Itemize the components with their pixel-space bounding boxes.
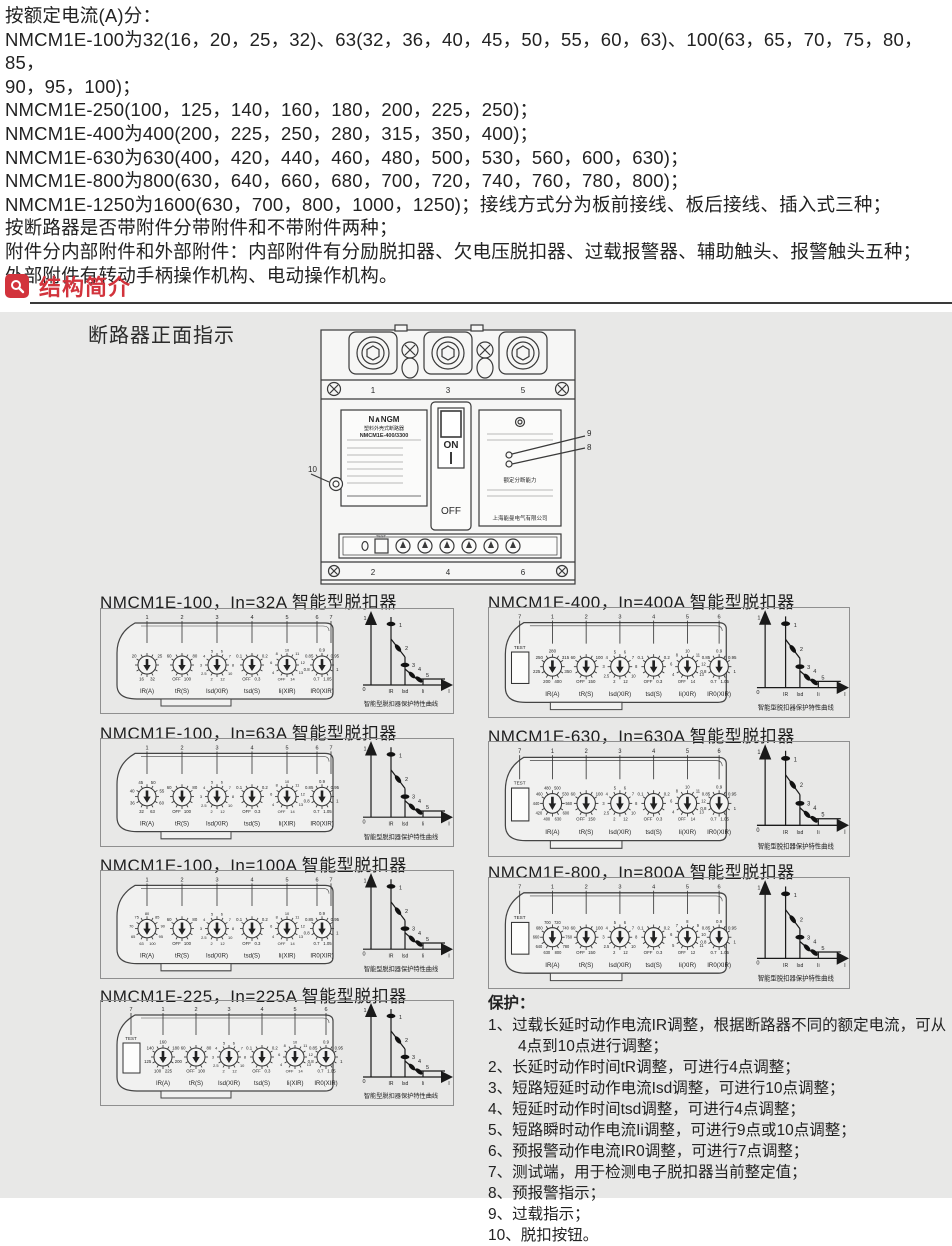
pole-6: 6 — [521, 568, 526, 577]
svg-text:5: 5 — [223, 1040, 225, 1045]
svg-text:6: 6 — [315, 745, 318, 751]
intro-line: NMCM1E-630为630(400，420，440，460，480，500，5… — [5, 146, 949, 170]
svg-text:OFF: OFF — [278, 809, 286, 814]
svg-text:140: 140 — [147, 1046, 155, 1051]
svg-text:Isd(XIR): Isd(XIR) — [609, 691, 631, 698]
svg-text:0.7: 0.7 — [710, 950, 717, 955]
svg-text:720: 720 — [554, 920, 561, 925]
trip-curve-chart: 1234510IRIsdIiI智能型脱扣器保护特性曲线 — [756, 744, 849, 850]
svg-text:60: 60 — [167, 654, 172, 659]
svg-text:1.05: 1.05 — [720, 679, 729, 684]
svg-text:IR(A): IR(A) — [140, 952, 154, 959]
svg-text:2: 2 — [180, 745, 183, 751]
svg-text:10: 10 — [701, 932, 706, 937]
svg-text:6: 6 — [233, 1040, 235, 1045]
svg-text:8: 8 — [276, 651, 278, 656]
trip-unit-panel-drawing: TEST712345640042044046048050053056060063… — [489, 742, 849, 856]
svg-text:560: 560 — [565, 801, 572, 806]
svg-text:12: 12 — [301, 660, 305, 665]
svg-text:OFF: OFF — [278, 677, 286, 682]
svg-text:1: 1 — [757, 615, 760, 621]
svg-text:100: 100 — [154, 1069, 162, 1074]
protection-item: 7、测试端，用于检测电子脱扣器当前整定值； — [488, 1162, 948, 1183]
brand-text: N∧NGM — [369, 415, 400, 424]
svg-text:0.1: 0.1 — [637, 791, 644, 796]
svg-text:Isd: Isd — [402, 821, 409, 827]
svg-text:3: 3 — [412, 795, 415, 801]
svg-text:2: 2 — [194, 1007, 197, 1013]
trip-curve-chart: 1234510IRIsdIiI智能型脱扣器保护特性曲线 — [362, 873, 453, 973]
svg-text:60: 60 — [181, 1046, 186, 1051]
svg-text:3: 3 — [227, 1007, 230, 1013]
svg-text:60: 60 — [571, 655, 576, 660]
svg-text:IR: IR — [783, 963, 788, 969]
svg-text:Isd: Isd — [402, 689, 409, 695]
svg-text:IR(A): IR(A) — [545, 829, 559, 836]
svg-text:OFF: OFF — [242, 941, 251, 946]
svg-text:36: 36 — [130, 801, 135, 806]
svg-text:tsd(S): tsd(S) — [645, 691, 661, 698]
pole-1: 1 — [371, 386, 376, 395]
svg-text:IR0(XIR): IR0(XIR) — [707, 962, 731, 969]
svg-text:14: 14 — [691, 816, 696, 821]
svg-text:740: 740 — [562, 925, 569, 930]
svg-text:IR: IR — [389, 689, 394, 695]
svg-text:IR0(XIR): IR0(XIR) — [310, 689, 333, 695]
svg-text:OFF: OFF — [644, 679, 653, 684]
protection-item: 1、过载长延时动作电流IR调整，根据断路器不同的额定电流，可从4点到10点进行调… — [488, 1015, 948, 1057]
svg-text:1: 1 — [399, 885, 402, 891]
pole-3: 3 — [446, 386, 451, 395]
svg-text:0.8: 0.8 — [304, 931, 311, 936]
protection-item: 9、过载指示； — [488, 1204, 948, 1225]
svg-text:100: 100 — [596, 791, 604, 796]
on-label: ON — [444, 440, 459, 451]
svg-text:420: 420 — [536, 810, 543, 815]
protection-item: 5、短路瞬时动作电流Ii调整，可进行9点或10点调整； — [488, 1120, 948, 1141]
svg-text:Isd(XIR): Isd(XIR) — [218, 1081, 240, 1087]
svg-text:0.3: 0.3 — [254, 941, 261, 946]
svg-text:4: 4 — [813, 806, 817, 812]
svg-text:5: 5 — [821, 812, 824, 818]
svg-text:0.95: 0.95 — [331, 654, 340, 659]
svg-text:100: 100 — [198, 1069, 206, 1074]
svg-text:OFF: OFF — [576, 816, 585, 821]
svg-text:6: 6 — [718, 614, 721, 620]
svg-text:0.1: 0.1 — [246, 1046, 253, 1051]
svg-text:60: 60 — [167, 785, 172, 790]
svg-text:1.05: 1.05 — [323, 677, 332, 682]
svg-text:5: 5 — [426, 937, 429, 943]
intro-line: 附件分内部附件和外部附件：内部附件有分励脱扣器、欠电压脱扣器、过载报警器、辅助触… — [5, 240, 949, 264]
svg-text:640: 640 — [536, 944, 543, 949]
svg-text:IR: IR — [783, 692, 788, 698]
svg-text:680: 680 — [536, 925, 543, 930]
svg-text:I: I — [844, 830, 846, 836]
svg-text:IR0(XIR): IR0(XIR) — [310, 820, 333, 827]
svg-text:7: 7 — [329, 745, 332, 751]
svg-text:150: 150 — [588, 950, 596, 955]
svg-text:TEST: TEST — [125, 1036, 137, 1041]
svg-text:IR(A): IR(A) — [545, 691, 559, 698]
svg-text:6: 6 — [324, 1007, 327, 1013]
intro-line: 外部附件有转动手柄操作机构、电动操作机构。 — [5, 264, 949, 288]
svg-text:6: 6 — [278, 1052, 280, 1057]
trip-unit-panel-drawing: TEST7123456100125140160180200225IR(A)OFF… — [101, 1001, 453, 1105]
intro-line: NMCM1E-1250为1600(630，700，800，1000，1250)；… — [5, 193, 949, 217]
svg-text:200: 200 — [175, 1059, 183, 1064]
svg-text:OFF: OFF — [678, 950, 686, 955]
svg-text:630: 630 — [555, 816, 562, 821]
svg-text:1.05: 1.05 — [720, 816, 729, 821]
svg-text:0.95: 0.95 — [728, 655, 737, 660]
svg-text:1: 1 — [145, 877, 148, 883]
svg-text:0.9: 0.9 — [716, 649, 723, 654]
svg-text:8: 8 — [232, 662, 234, 667]
svg-text:1: 1 — [399, 753, 402, 759]
svg-text:IR: IR — [389, 1081, 394, 1087]
svg-text:100: 100 — [596, 925, 604, 930]
svg-text:6: 6 — [718, 749, 721, 755]
svg-text:100: 100 — [184, 677, 192, 682]
svg-text:1: 1 — [794, 758, 797, 764]
svg-text:100: 100 — [149, 941, 156, 946]
svg-text:1.05: 1.05 — [323, 941, 332, 946]
svg-text:0.8: 0.8 — [700, 939, 707, 944]
svg-text:1: 1 — [734, 669, 737, 674]
svg-text:0.9: 0.9 — [319, 648, 326, 653]
svg-text:Ii(XIR): Ii(XIR) — [279, 952, 296, 959]
intro-line: 按断路器是否带附件分带附件和不带附件两种； — [5, 216, 949, 240]
svg-text:OFF: OFF — [678, 679, 686, 684]
svg-text:Isd: Isd — [796, 830, 803, 836]
svg-text:315: 315 — [562, 655, 570, 660]
svg-text:4: 4 — [813, 669, 816, 675]
svg-text:280: 280 — [549, 649, 557, 654]
svg-text:0.2: 0.2 — [262, 917, 269, 922]
trip-unit-section: NMCM1E-100，In=63A 智能型脱扣器1234567323640455… — [100, 719, 397, 744]
svg-text:4: 4 — [813, 940, 817, 946]
svg-text:1: 1 — [336, 931, 339, 936]
svg-text:530: 530 — [562, 791, 569, 796]
protection-title: 保护： — [488, 993, 948, 1014]
intro-line: NMCM1E-100为32(16，20，25，32)、63(32，36，40，4… — [5, 28, 949, 75]
svg-text:IR(A): IR(A) — [140, 820, 154, 827]
svg-text:tR(S): tR(S) — [579, 962, 593, 969]
svg-text:IR: IR — [389, 953, 394, 959]
svg-text:1: 1 — [399, 1015, 402, 1021]
svg-text:0.7: 0.7 — [318, 1069, 325, 1074]
svg-text:1.05: 1.05 — [327, 1069, 336, 1074]
svg-text:100: 100 — [596, 655, 604, 660]
svg-text:0.95: 0.95 — [331, 917, 340, 922]
svg-text:0.3: 0.3 — [254, 677, 261, 682]
svg-text:150: 150 — [588, 679, 596, 684]
svg-text:0.9: 0.9 — [323, 1040, 330, 1045]
svg-text:OFF: OFF — [172, 677, 181, 682]
trip-curve-chart: 1234510IRIsdIiI智能型脱扣器保护特性曲线 — [362, 1003, 453, 1100]
svg-text:4: 4 — [652, 885, 656, 891]
svg-text:0.95: 0.95 — [728, 791, 737, 796]
svg-text:2: 2 — [405, 909, 408, 915]
trip-curve-chart: 1234510IRIsdIiI智能型脱扣器保护特性曲线 — [362, 611, 453, 708]
svg-text:Ii: Ii — [817, 692, 820, 698]
svg-text:0.9: 0.9 — [716, 919, 723, 924]
svg-text:0.3: 0.3 — [656, 950, 663, 955]
svg-text:tsd(S): tsd(S) — [645, 962, 661, 969]
svg-text:Ii(XIR): Ii(XIR) — [279, 820, 296, 827]
svg-text:OFF: OFF — [644, 816, 653, 821]
svg-text:IR(A): IR(A) — [545, 962, 559, 969]
svg-text:2: 2 — [180, 615, 183, 621]
svg-text:OFF: OFF — [242, 677, 251, 682]
svg-text:80: 80 — [192, 785, 197, 790]
structure-panel: 断路器正面指示 — [0, 312, 952, 1198]
svg-text:智能型脱扣器保护特性曲线: 智能型脱扣器保护特性曲线 — [364, 1092, 438, 1100]
company-text: 上海能曼电气有限公司 — [492, 514, 547, 522]
trip-unit-panel-box: 123456716202532IR(A)OFF6080100tR(S)22.53… — [100, 608, 454, 714]
svg-text:12: 12 — [623, 816, 628, 821]
svg-text:IR: IR — [389, 821, 394, 827]
svg-text:1: 1 — [757, 886, 760, 892]
svg-text:80: 80 — [192, 917, 197, 922]
svg-text:5: 5 — [821, 675, 824, 681]
svg-text:32: 32 — [139, 809, 144, 814]
trip-unit-panel-drawing: 12345676365707580859095100IR(A)OFF608010… — [101, 871, 453, 978]
svg-text:tsd(S): tsd(S) — [244, 820, 260, 827]
svg-text:8: 8 — [284, 1043, 286, 1048]
svg-text:Isd(XIR): Isd(XIR) — [206, 689, 228, 695]
svg-text:0: 0 — [362, 951, 365, 957]
svg-text:12: 12 — [701, 798, 706, 803]
svg-text:Isd(XIR): Isd(XIR) — [206, 820, 228, 827]
svg-text:25: 25 — [157, 654, 162, 659]
section-title: 结构简介 — [39, 270, 131, 302]
svg-text:225: 225 — [165, 1069, 173, 1074]
off-label: OFF — [441, 506, 461, 517]
trip-button — [330, 478, 343, 491]
svg-text:350: 350 — [564, 669, 572, 674]
intro-line: NMCM1E-250(100，125，140，160，180，200，225，2… — [5, 98, 949, 122]
svg-text:1.05: 1.05 — [323, 809, 332, 814]
svg-text:2: 2 — [585, 885, 588, 891]
svg-text:0.8: 0.8 — [308, 1059, 315, 1064]
svg-text:6: 6 — [315, 877, 318, 883]
svg-text:600: 600 — [563, 810, 570, 815]
svg-text:4: 4 — [418, 799, 421, 805]
svg-text:1: 1 — [336, 799, 339, 804]
svg-text:2: 2 — [210, 941, 212, 946]
svg-text:2.5: 2.5 — [213, 1063, 218, 1068]
svg-text:2.5: 2.5 — [201, 803, 207, 808]
svg-text:1: 1 — [551, 749, 554, 755]
svg-text:0.85: 0.85 — [305, 917, 314, 922]
svg-text:8: 8 — [244, 1054, 246, 1059]
svg-text:0.2: 0.2 — [664, 925, 671, 930]
svg-text:智能型脱扣器保护特性曲线: 智能型脱扣器保护特性曲线 — [364, 964, 439, 973]
protection-item: 10、脱扣按钮。 — [488, 1225, 948, 1246]
trip-unit-strip — [339, 534, 561, 558]
svg-text:智能型脱扣器保护特性曲线: 智能型脱扣器保护特性曲线 — [364, 832, 439, 841]
svg-text:Ii: Ii — [817, 963, 820, 969]
magnifier-icon — [5, 274, 29, 298]
svg-text:7: 7 — [518, 749, 521, 755]
svg-text:0.8: 0.8 — [304, 667, 311, 672]
svg-text:3: 3 — [200, 662, 202, 667]
svg-text:Ii: Ii — [422, 1081, 425, 1087]
svg-text:1: 1 — [336, 667, 339, 672]
svg-text:3: 3 — [807, 935, 810, 941]
svg-text:0.85: 0.85 — [309, 1046, 318, 1051]
svg-text:3: 3 — [618, 885, 621, 891]
svg-text:3: 3 — [412, 663, 415, 669]
svg-text:12: 12 — [220, 677, 224, 682]
pole-4: 4 — [446, 568, 451, 577]
svg-text:IR: IR — [783, 830, 788, 836]
svg-text:5: 5 — [686, 614, 689, 620]
svg-text:TEST: TEST — [514, 645, 526, 650]
svg-text:12: 12 — [232, 1069, 236, 1074]
product-type-text: 塑料外壳式断路器 — [364, 425, 404, 432]
protection-item: 4、短延时动作时间tsd调整，可进行4点调整； — [488, 1099, 948, 1120]
svg-text:12: 12 — [220, 809, 224, 814]
trip-curve-chart: 1234510IRIsdIiI智能型脱扣器保护特性曲线 — [362, 741, 453, 841]
svg-text:2: 2 — [800, 917, 803, 923]
svg-text:400: 400 — [554, 679, 562, 684]
svg-text:0: 0 — [756, 828, 760, 834]
trip-unit-section: NMCM1E-225，In=225A 智能型脱扣器TEST71234561001… — [100, 982, 407, 1007]
svg-text:5: 5 — [285, 877, 288, 883]
svg-text:智能型脱扣器保护特性曲线: 智能型脱扣器保护特性曲线 — [758, 703, 835, 712]
trip-unit-section: NMCM1E-800，In=800A 智能型脱扣器TEST71234566306… — [488, 858, 795, 883]
svg-text:I: I — [448, 821, 450, 827]
svg-text:OFF: OFF — [576, 679, 585, 684]
svg-text:4: 4 — [250, 615, 253, 621]
svg-text:10: 10 — [685, 785, 690, 790]
svg-text:10: 10 — [631, 944, 636, 949]
callout-10: 10 — [308, 465, 317, 474]
svg-text:4: 4 — [250, 745, 253, 751]
svg-text:IR0(XIR): IR0(XIR) — [707, 829, 731, 836]
svg-text:60: 60 — [167, 917, 172, 922]
trip-unit-section: NMCM1E-100，In=100A 智能型脱扣器123456763657075… — [100, 851, 407, 876]
trip-unit-panel-drawing: 12345673236404550556063IR(A)OFF6080100tR… — [101, 739, 453, 846]
svg-text:0.85: 0.85 — [305, 654, 314, 659]
svg-text:32: 32 — [150, 677, 155, 682]
svg-text:7: 7 — [518, 885, 521, 891]
svg-text:1: 1 — [551, 614, 554, 620]
svg-text:6: 6 — [315, 615, 318, 621]
svg-text:Isd(XIR): Isd(XIR) — [206, 952, 228, 959]
svg-text:0.7: 0.7 — [314, 941, 321, 946]
trip-unit-section: NMCM1E-630，In=630A 智能型脱扣器TEST71234564004… — [488, 722, 795, 747]
section-divider — [30, 302, 952, 304]
svg-text:125: 125 — [144, 1059, 152, 1064]
svg-text:50: 50 — [151, 780, 156, 785]
svg-text:智能型脱扣器保护特性曲线: 智能型脱扣器保护特性曲线 — [758, 841, 834, 850]
nameplate — [341, 410, 427, 506]
svg-text:Isd: Isd — [402, 1081, 409, 1087]
svg-text:Ii: Ii — [817, 830, 820, 836]
svg-text:1: 1 — [551, 885, 554, 891]
svg-text:0.9: 0.9 — [319, 779, 326, 784]
svg-text:5: 5 — [426, 673, 429, 679]
svg-text:TEST: TEST — [514, 781, 526, 787]
svg-text:Ii: Ii — [422, 821, 424, 827]
svg-text:6: 6 — [221, 648, 223, 653]
callout-9: 9 — [587, 429, 592, 438]
svg-text:0.95: 0.95 — [728, 925, 737, 930]
svg-text:12: 12 — [309, 1052, 313, 1057]
intro-line: 按额定电流(A)分： — [5, 4, 949, 28]
svg-text:7: 7 — [229, 654, 231, 659]
protection-item: 8、预报警指示； — [488, 1183, 948, 1204]
svg-text:1: 1 — [734, 806, 737, 811]
svg-text:0.8: 0.8 — [700, 669, 707, 674]
svg-text:700: 700 — [544, 920, 551, 925]
svg-text:250: 250 — [536, 655, 544, 660]
svg-text:4: 4 — [418, 931, 421, 937]
svg-text:1: 1 — [145, 745, 148, 751]
svg-text:480: 480 — [544, 785, 551, 790]
svg-text:I: I — [448, 1081, 450, 1087]
svg-text:460: 460 — [536, 791, 543, 796]
svg-text:2: 2 — [585, 614, 588, 620]
svg-text:3: 3 — [215, 615, 218, 621]
svg-text:2: 2 — [405, 777, 408, 783]
svg-text:7: 7 — [518, 614, 521, 620]
svg-text:OFF: OFF — [576, 950, 585, 955]
trip-unit-panel-box: 12345673236404550556063IR(A)OFF6080100tR… — [100, 738, 454, 847]
svg-text:3: 3 — [618, 614, 621, 620]
svg-text:IR0(XIR): IR0(XIR) — [310, 952, 333, 959]
svg-text:200: 200 — [543, 679, 551, 684]
svg-text:5: 5 — [211, 648, 213, 653]
svg-text:0.2: 0.2 — [272, 1046, 279, 1051]
section-header: 结构简介 — [5, 270, 131, 302]
svg-text:2.5: 2.5 — [604, 673, 610, 678]
svg-text:0.95: 0.95 — [335, 1046, 344, 1051]
svg-text:1: 1 — [363, 878, 366, 884]
svg-text:OFF: OFF — [286, 1069, 294, 1074]
trip-unit-section: NMCM1E-400，In=400A 智能型脱扣器TEST71234562002… — [488, 588, 795, 613]
trip-curve-chart: 1234510IRIsdIiI智能型脱扣器保护特性曲线 — [756, 880, 849, 983]
svg-text:0.85: 0.85 — [702, 925, 711, 930]
svg-text:Ii(XIR): Ii(XIR) — [679, 962, 696, 969]
svg-text:5: 5 — [285, 615, 288, 621]
svg-text:0: 0 — [362, 1079, 365, 1085]
svg-text:11: 11 — [303, 1043, 307, 1048]
svg-text:Isd(XIR): Isd(XIR) — [609, 962, 631, 969]
svg-text:0: 0 — [756, 690, 759, 696]
svg-text:0.95: 0.95 — [331, 785, 340, 790]
pole-2: 2 — [371, 568, 376, 577]
svg-text:100: 100 — [184, 941, 192, 946]
svg-text:Isd: Isd — [797, 692, 804, 698]
svg-text:2: 2 — [800, 783, 803, 789]
svg-text:3: 3 — [215, 745, 218, 751]
svg-text:160: 160 — [159, 1040, 167, 1045]
svg-text:20: 20 — [132, 654, 137, 659]
svg-text:1: 1 — [399, 623, 402, 629]
intro-line: 90，95，100)； — [5, 75, 949, 99]
svg-text:1: 1 — [794, 893, 797, 899]
svg-text:660: 660 — [533, 935, 540, 940]
svg-text:0.7: 0.7 — [710, 679, 717, 684]
svg-text:2: 2 — [210, 809, 212, 814]
svg-text:0: 0 — [362, 687, 365, 693]
svg-text:I: I — [844, 963, 846, 969]
